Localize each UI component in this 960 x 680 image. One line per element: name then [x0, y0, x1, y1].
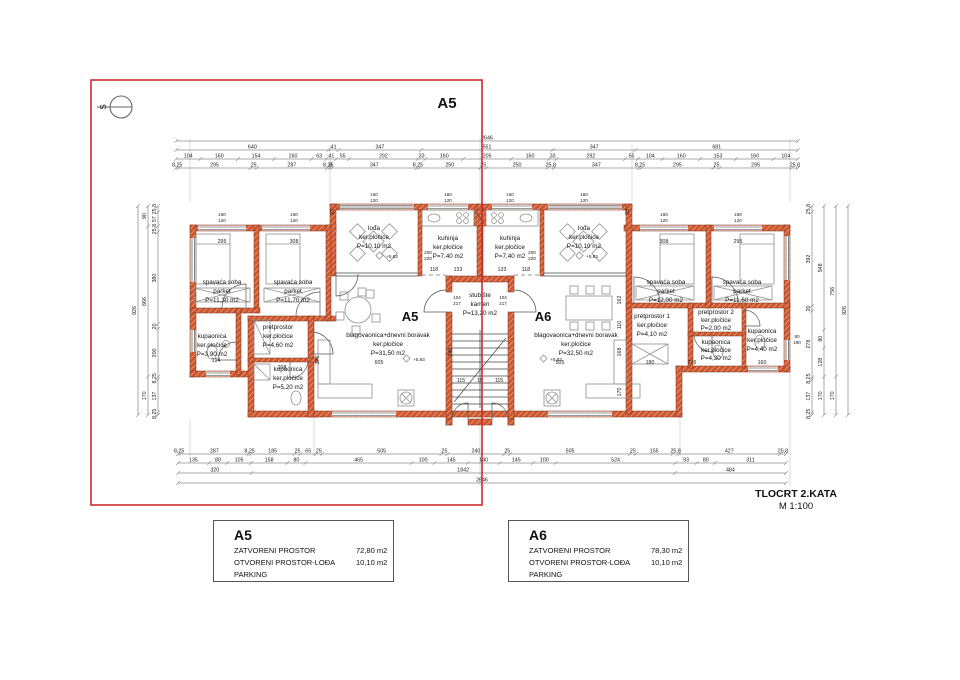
- inner-dim: 118: [430, 267, 438, 273]
- room-label: parket: [733, 288, 751, 295]
- room-label: P=11,70 m2: [276, 297, 310, 304]
- room-label: P=4,40 m2: [747, 346, 778, 353]
- legend-value: 78,30 m2: [651, 546, 682, 555]
- room-label: P=11,60 m2: [725, 297, 759, 304]
- inner-dim: 160: [218, 212, 226, 217]
- dimension-label: 278: [806, 340, 812, 349]
- legend-label: ZATVORENI PROSTOR: [234, 546, 356, 555]
- dimension-label: 160: [215, 154, 224, 160]
- legend-a5: A5 ZATVORENI PROSTOR 72,80 m2 OTVORENI P…: [213, 520, 394, 582]
- room-label: pretprostor: [263, 324, 293, 331]
- inner-dim: 168: [617, 348, 623, 357]
- inner-dim: 120: [370, 198, 378, 203]
- room-label: ker.pločice: [373, 341, 403, 348]
- legend-row: OTVORENI PROSTOR-LOĐA 10,10 m2: [234, 558, 393, 567]
- dimension-label: 137: [152, 392, 158, 401]
- inner-dim: 240: [448, 348, 454, 357]
- inner-dim: 120: [734, 218, 742, 223]
- legend-label: PARKING: [529, 570, 651, 579]
- dim-col-right-2: 54880128170: [818, 204, 826, 417]
- room-label: kamen: [471, 301, 490, 308]
- dimension-label: 128: [818, 358, 824, 367]
- dimension-label: 80: [215, 458, 221, 464]
- legend-value: 72,80 m2: [356, 546, 387, 555]
- dimension-label: 347: [375, 145, 384, 151]
- dimension-label: 135: [189, 458, 198, 464]
- dimension-label: 41: [328, 154, 334, 160]
- inner-dim: 200: [424, 250, 432, 255]
- dimension-label: 55: [629, 154, 635, 160]
- dimension-label: 8,25: [806, 409, 812, 419]
- dimension-label: 347: [592, 163, 601, 169]
- room-label: ker.pločice: [561, 341, 591, 348]
- dim-row-top-4: 8,25295252878,2583478,252502525025,83478…: [172, 163, 800, 171]
- legend-row: PARKING: [529, 570, 688, 579]
- dimension-label: 8,25: [244, 449, 254, 455]
- inner-dim: 217: [453, 301, 461, 306]
- room-label: pretprostor 2: [698, 309, 734, 316]
- room-label: ker.pločice: [747, 337, 777, 344]
- dim-col-right-1: 25,8392202788,251378,25: [806, 204, 814, 419]
- inner-dim: 23: [330, 209, 336, 215]
- legend-row: OTVORENI PROSTOR-LOĐA 10,10 m2: [529, 558, 688, 567]
- dimension-label: 41: [331, 145, 337, 151]
- floor-plan-drawing: spavaća soba parket P=11,30 m2 spavaća s…: [0, 0, 960, 680]
- dimension-label: 140: [479, 458, 488, 464]
- inner-dim: 308: [660, 239, 669, 245]
- inner-dim: 208: [278, 365, 287, 371]
- dimension-label: 287: [210, 449, 219, 455]
- dimension-label: 104: [781, 154, 790, 160]
- dimension-label: 640: [248, 145, 257, 151]
- dimension-label: 160: [440, 154, 449, 160]
- elevation-label: +5,83: [413, 357, 425, 362]
- dimension-label: 1842: [457, 468, 469, 474]
- dimension-label: 20: [806, 305, 812, 311]
- room-label: parket: [284, 288, 302, 295]
- dimension-label: 295: [210, 163, 219, 169]
- dimension-label: 2646: [481, 136, 493, 142]
- room-label: parket: [657, 288, 675, 295]
- legend-row: PARKING: [234, 570, 393, 579]
- legend-value: 10,10 m2: [356, 558, 387, 567]
- north-label: S: [99, 104, 108, 109]
- inner-dim: 110: [617, 321, 623, 329]
- dim-col-right-4: 926: [842, 204, 850, 417]
- room-label: P=4,30 m2: [701, 355, 732, 362]
- dimension-label: 295: [751, 163, 760, 169]
- dimension-label: 295: [673, 163, 682, 169]
- dimension-label: 160: [677, 154, 686, 160]
- floor-plan-sheet: spavaća soba parket P=11,30 m2 spavaća s…: [0, 0, 960, 680]
- dim-col-left-3: 926: [132, 204, 140, 417]
- room-label: P=11,30 m2: [205, 297, 239, 304]
- inner-dim: 160: [734, 212, 742, 217]
- drawing-scale: M 1:100: [722, 501, 870, 512]
- room-label: stubište: [469, 292, 491, 299]
- room-label: P=5,20 m2: [273, 384, 304, 391]
- dimension-label: 505: [377, 449, 386, 455]
- drawing-title: TLOCRT 2.KATA: [722, 488, 870, 500]
- dimension-label: 380: [152, 274, 158, 283]
- legend-label: OTVORENI PROSTOR-LOĐA: [234, 558, 356, 567]
- inner-dim: 220: [424, 256, 432, 261]
- dimension-label: 170: [818, 391, 824, 400]
- dimension-label: 55: [340, 154, 346, 160]
- dimension-label: 292: [379, 154, 388, 160]
- inner-dim: 170: [617, 388, 623, 397]
- dimension-label: 25: [442, 449, 448, 455]
- inner-dim: 220: [528, 256, 536, 261]
- dimension-label: 320: [210, 468, 219, 474]
- inner-dim: 118: [522, 267, 530, 273]
- inner-dim: 133: [454, 267, 463, 273]
- legend-label: ZATVORENI PROSTOR: [529, 546, 651, 555]
- inner-dim: 120: [444, 198, 452, 203]
- inner-dim: 160: [444, 192, 452, 197]
- room-label: spavaća soba: [274, 279, 313, 286]
- legend-row: ZATVORENI PROSTOR 72,80 m2: [234, 546, 393, 555]
- dimension-label: 137: [806, 392, 812, 401]
- dimension-label: 666: [142, 297, 148, 306]
- dimension-label: 200: [152, 348, 158, 357]
- inner-dim: 104: [453, 295, 461, 300]
- dimension-label: 392: [806, 255, 812, 264]
- room-label: P=2,00 m2: [701, 325, 732, 332]
- dimension-label: 505: [566, 449, 575, 455]
- dimension-label: 25: [714, 163, 720, 169]
- inner-dim: 160: [290, 212, 298, 217]
- dimension-label: 80: [818, 336, 824, 342]
- inner-dim: 160: [758, 360, 767, 366]
- dimension-label: 548: [818, 263, 824, 272]
- room-label: P=4,60 m2: [263, 342, 294, 349]
- inner-dim: 217: [499, 301, 507, 306]
- inner-dim: 605: [375, 360, 384, 366]
- dimension-label: 65: [305, 449, 311, 455]
- dimension-label: 250: [513, 163, 522, 169]
- inner-dim: 190: [793, 340, 801, 345]
- dimension-label: 158: [265, 458, 274, 464]
- dimension-label: 347: [590, 145, 599, 151]
- inner-dim: 160: [370, 192, 378, 197]
- dimension-label: 145: [512, 458, 521, 464]
- dimension-label: 93: [683, 458, 689, 464]
- dim-col-left-1: 25,85725,8380202008,251378,25: [152, 204, 160, 419]
- room-label: ker.pločice: [433, 244, 463, 251]
- dimension-label: 104: [184, 154, 193, 160]
- dimension-label: 33: [550, 154, 556, 160]
- dimension-label: 25: [504, 449, 510, 455]
- dimension-label: 25: [251, 163, 257, 169]
- room-label: P=10,10 m2: [357, 243, 392, 250]
- dimension-label: 20: [152, 323, 158, 329]
- inner-dim: 194: [212, 358, 221, 364]
- dimension-label: 80: [293, 458, 299, 464]
- dimension-label: 155: [650, 449, 659, 455]
- dimension-label: 25: [295, 449, 301, 455]
- inner-dim: 180: [646, 360, 655, 366]
- dimension-label: 465: [354, 458, 363, 464]
- room-label: blagovaonica+dnevni boravak: [534, 332, 618, 339]
- inner-dim: 160: [580, 192, 588, 197]
- room-label: lođa: [578, 225, 590, 232]
- room-label: kuhinja: [500, 235, 520, 242]
- dimension-label: 105: [235, 458, 244, 464]
- inner-dim: 133: [498, 267, 507, 273]
- dimension-label: 250: [445, 163, 454, 169]
- dimension-label: 427: [725, 449, 734, 455]
- dim-row-top-3: 1041601541606341552923316020516033292551…: [174, 154, 800, 162]
- dimension-label: 484: [726, 468, 735, 474]
- dimension-label: 185: [268, 449, 277, 455]
- inner-dim: 23: [625, 209, 631, 215]
- room-label: ker.pločice: [263, 333, 293, 340]
- dimension-label: 551: [483, 145, 492, 151]
- inner-dim: 276: [688, 360, 697, 366]
- apartment-label-a6: A6: [535, 309, 552, 324]
- stairs: [452, 330, 508, 408]
- room-label: P=12,00 m2: [649, 297, 684, 304]
- room-label: blagovaonica+dnevni boravak: [346, 332, 430, 339]
- dim-row-bottom-1: 8,252878,2518525652550525240255052515525…: [174, 449, 788, 457]
- legend-a6-title: A6: [529, 527, 688, 543]
- inner-dim: 120: [290, 218, 298, 223]
- legend-row: ZATVORENI PROSTOR 78,30 m2: [529, 546, 688, 555]
- dimension-label: 681: [712, 145, 721, 151]
- dimension-label: 8,25: [806, 373, 812, 383]
- inner-dim: 162: [617, 296, 623, 305]
- inner-dim: 505: [556, 360, 565, 366]
- room-label: P=32,50 m2: [559, 350, 594, 357]
- dimension-label: 25: [316, 449, 322, 455]
- room-label: lođa: [368, 225, 380, 232]
- room-label: kupaonica: [702, 339, 731, 346]
- room-label: P=3,90 m2: [197, 351, 228, 358]
- room-label: ker.pločice: [701, 347, 731, 354]
- room-label: kupaonica: [198, 333, 227, 340]
- dimension-label: 100: [540, 458, 549, 464]
- dimension-label: 347: [370, 163, 379, 169]
- dimension-label: 240: [471, 449, 480, 455]
- dimension-label: 33: [419, 154, 425, 160]
- room-label: P=7,40 m2: [495, 253, 526, 260]
- dimension-label: 57: [152, 216, 158, 222]
- room-label: ker.pločice: [637, 322, 667, 329]
- inner-dim: 308: [290, 239, 299, 245]
- dimension-label: 8,25: [635, 163, 645, 169]
- dimension-label: 926: [842, 306, 848, 315]
- room-label: kupaonica: [748, 328, 777, 335]
- elevation-label: +5,83: [386, 254, 398, 259]
- dimension-label: 311: [746, 458, 754, 464]
- washer-icon: [544, 390, 560, 406]
- inner-dim: 295: [734, 239, 743, 245]
- room-label: P=13,20 m2: [463, 310, 498, 317]
- room-label: ker.pločice: [359, 234, 389, 241]
- room-label: P=10,10 m2: [567, 243, 602, 250]
- dimension-label: 8,25: [152, 409, 158, 419]
- room-label: ker.pločice: [569, 234, 599, 241]
- dimension-label: 160: [289, 154, 298, 160]
- apartment-label-a5: A5: [402, 309, 419, 324]
- dimension-label: 170: [142, 391, 148, 400]
- inner-dim: 104: [499, 295, 507, 300]
- washer-icon: [398, 390, 414, 406]
- dimension-label: 160: [526, 154, 535, 160]
- room-label: P=31,50 m2: [371, 350, 406, 357]
- room-label: ker.pločice: [495, 244, 525, 251]
- legend-value: 10,10 m2: [651, 558, 682, 567]
- dimension-label: 153: [714, 154, 723, 160]
- room-label: spavaća soba: [203, 279, 242, 286]
- dimension-label: 25,8: [806, 204, 812, 214]
- dimension-label: 25,8: [152, 204, 158, 214]
- elevation-label: +5,83: [586, 254, 598, 259]
- room-label: ker.pločice: [197, 342, 227, 349]
- room-label: spavaća soba: [647, 279, 686, 286]
- dimension-label: 80: [703, 458, 709, 464]
- inner-dim: 160: [506, 192, 514, 197]
- dimension-label: 90: [142, 213, 148, 219]
- legend-a5-title: A5: [234, 527, 393, 543]
- dimension-label: 25,8: [152, 224, 158, 234]
- title-block: TLOCRT 2.KATA M 1:100: [722, 488, 870, 512]
- dimension-label: 100: [419, 458, 428, 464]
- inner-dim: 120: [580, 198, 588, 203]
- dimension-label: 145: [447, 458, 456, 464]
- inner-dim: 115: [457, 378, 465, 384]
- dimension-label: 205: [483, 154, 492, 160]
- dim-col-right-3: 756170: [830, 204, 838, 417]
- inner-dim: 160: [660, 212, 668, 217]
- inner-dim: 120: [506, 198, 514, 203]
- dimension-label: 287: [287, 163, 296, 169]
- dim-row-top-total: 2646: [174, 136, 800, 144]
- dimension-label: 170: [830, 391, 836, 400]
- dimension-label: 756: [830, 287, 836, 296]
- dimension-label: 160: [750, 154, 759, 160]
- inner-dim: 200: [528, 250, 536, 255]
- room-label: parket: [213, 288, 231, 295]
- inner-dim: 295: [218, 239, 227, 245]
- dimension-label: 8,25: [152, 373, 158, 383]
- inner-dim: 370: [315, 356, 321, 365]
- dimension-label: 8,25: [174, 449, 184, 455]
- dimension-label: 524: [611, 458, 620, 464]
- selection-label-a5: A5: [437, 95, 456, 112]
- dim-col-left-2: 90666170: [142, 204, 150, 417]
- inner-dim: 120: [218, 218, 226, 223]
- room-label: P=4,10 m2: [637, 331, 668, 338]
- legend-label: OTVORENI PROSTOR-LOĐA: [529, 558, 651, 567]
- dimension-label: 8,25: [172, 163, 182, 169]
- dimension-label: 154: [252, 154, 261, 160]
- dim-row-top-2: 64041347551347681: [174, 145, 800, 153]
- dimension-label: 63: [316, 154, 322, 160]
- dimension-label: 104: [646, 154, 655, 160]
- dimension-label: 8: [329, 163, 332, 169]
- room-label: P=7,40 m2: [433, 253, 464, 260]
- inner-dim: 80: [794, 334, 800, 339]
- dimension-label: 292: [586, 154, 595, 160]
- inner-dim: 120: [660, 218, 668, 223]
- room-label: spavaća soba: [723, 279, 762, 286]
- room-label: ker.pločice: [701, 317, 731, 324]
- dimension-label: 25: [630, 449, 636, 455]
- dimension-label: 8,25: [413, 163, 423, 169]
- legend-a6: A6 ZATVORENI PROSTOR 78,30 m2 OTVORENI P…: [508, 520, 689, 582]
- legend-label: PARKING: [234, 570, 356, 579]
- room-label: pretprostor 1: [634, 313, 670, 320]
- inner-dim: 115: [495, 378, 503, 384]
- room-label: kuhinja: [438, 235, 458, 242]
- dimension-label: 926: [132, 306, 138, 315]
- north-arrow-icon: S: [97, 96, 132, 118]
- room-label: ker.pločice: [273, 375, 303, 382]
